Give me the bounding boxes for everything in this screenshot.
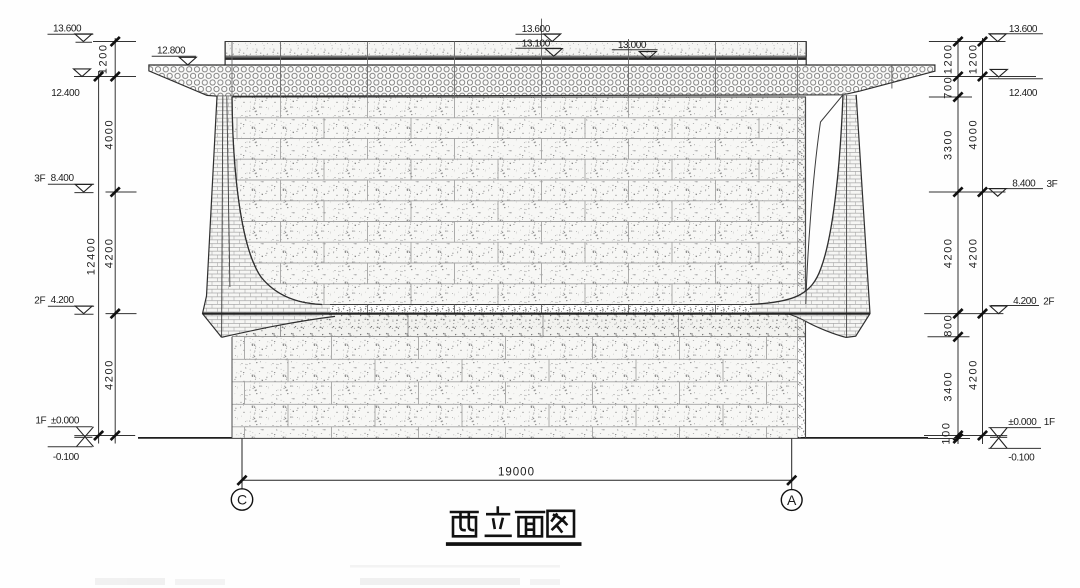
svg-text:1200: 1200 <box>942 43 954 74</box>
svg-text:13.100: 13.100 <box>522 38 551 49</box>
svg-text:2F: 2F <box>34 295 45 306</box>
svg-text:4200: 4200 <box>968 359 980 390</box>
svg-text:4200: 4200 <box>968 237 980 268</box>
svg-text:4200: 4200 <box>942 237 954 268</box>
svg-text:13.600: 13.600 <box>1009 24 1038 35</box>
svg-text:-0.100: -0.100 <box>53 452 80 463</box>
svg-text:13.000: 13.000 <box>618 40 647 51</box>
svg-text:12.800: 12.800 <box>157 45 186 56</box>
svg-text:12.400: 12.400 <box>51 88 80 99</box>
svg-text:A: A <box>787 492 797 508</box>
svg-text:3F: 3F <box>34 174 45 185</box>
svg-text:C: C <box>237 492 247 508</box>
svg-text:2F: 2F <box>1043 297 1054 308</box>
svg-text:1200: 1200 <box>97 43 109 74</box>
svg-text:4000: 4000 <box>103 119 115 150</box>
svg-text:4200: 4200 <box>103 237 115 268</box>
svg-text:100: 100 <box>940 421 952 444</box>
svg-text:3300: 3300 <box>942 129 954 160</box>
svg-text:12.400: 12.400 <box>1009 88 1038 99</box>
svg-text:13.600: 13.600 <box>522 24 551 35</box>
svg-text:-0.100: -0.100 <box>1008 453 1035 464</box>
svg-text:8.400: 8.400 <box>51 173 75 184</box>
svg-text:1200: 1200 <box>968 43 980 74</box>
svg-text:8.400: 8.400 <box>1012 178 1036 189</box>
svg-text:12400: 12400 <box>85 237 97 276</box>
svg-text:19000: 19000 <box>498 467 535 479</box>
svg-text:1F: 1F <box>35 416 46 427</box>
svg-text:±0.000: ±0.000 <box>1008 417 1037 428</box>
svg-text:±0.000: ±0.000 <box>51 416 80 427</box>
svg-text:800: 800 <box>942 314 954 337</box>
svg-text:700: 700 <box>942 76 954 99</box>
svg-text:13.600: 13.600 <box>53 24 82 35</box>
svg-text:1F: 1F <box>1044 417 1055 428</box>
svg-text:3F: 3F <box>1047 179 1058 190</box>
svg-text:4200: 4200 <box>103 359 115 390</box>
svg-text:3400: 3400 <box>942 371 954 402</box>
svg-text:4.200: 4.200 <box>51 295 75 306</box>
svg-text:4000: 4000 <box>968 119 980 150</box>
